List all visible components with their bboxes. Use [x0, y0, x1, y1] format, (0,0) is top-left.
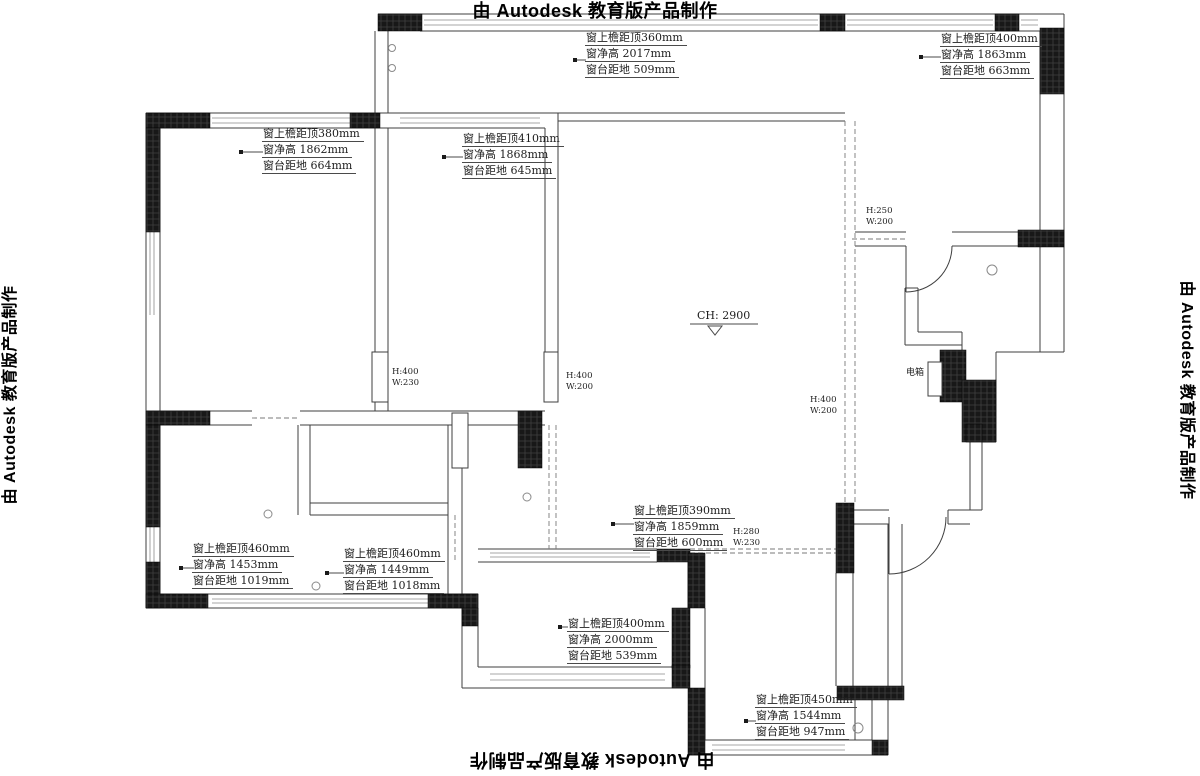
annotation-line: 窗净高 1862mm — [262, 142, 352, 158]
frames — [372, 352, 942, 468]
annotation-line: 窗上檐距顶400mm — [940, 31, 1042, 47]
annotation-line: 窗净高 2000mm — [567, 632, 657, 648]
annotation-line: 窗上檐距顶450mm — [755, 692, 857, 708]
annotation-line: 窗净高 1453mm — [192, 557, 282, 573]
annotation-line: 窗净高 2017mm — [585, 46, 675, 62]
opening-width: W:200 — [566, 382, 593, 393]
opening-height: H:400 — [566, 371, 593, 382]
watermark-bottom: 由 Autodesk 教育版产品制作 — [452, 749, 732, 771]
annotation-line: 窗上檐距顶360mm — [585, 30, 687, 46]
window-annotation-top-center: 窗上檐距顶360mm 窗净高 2017mm 窗台距地 509mm — [585, 30, 687, 78]
opening-height: H:250 — [866, 206, 893, 217]
opening-width: W:230 — [392, 378, 419, 389]
floor-plan-page: 窗上檐距顶360mm 窗净高 2017mm 窗台距地 509mm 窗上檐距顶40… — [0, 0, 1200, 776]
annotation-line: 窗上檐距顶460mm — [343, 546, 445, 562]
opening-width: W:230 — [733, 538, 760, 549]
ceiling-height-label: CH: 2900 — [697, 309, 750, 322]
watermark-left: 由 Autodesk 教育版产品制作 — [0, 255, 22, 535]
opening-height: H:400 — [392, 367, 419, 378]
annotation-line: 窗净高 1449mm — [343, 562, 433, 578]
window-annotation-bottom-middle: 窗上檐距顶400mm 窗净高 2000mm 窗台距地 539mm — [567, 616, 669, 664]
annotation-line: 窗台距地 600mm — [633, 535, 727, 551]
window-annotation-lower-left: 窗上檐距顶460mm 窗净高 1453mm 窗台距地 1019mm — [192, 541, 294, 589]
ceiling-height-marker — [690, 324, 758, 335]
window-annotation-upper-left: 窗上檐距顶380mm 窗净高 1862mm 窗台距地 664mm — [262, 126, 364, 174]
annotation-line: 窗台距地 509mm — [585, 62, 679, 78]
opening-label-top-right-passage: H:250 W:200 — [866, 206, 893, 228]
annotation-line: 窗台距地 947mm — [755, 724, 849, 740]
annotation-line: 窗上檐距顶380mm — [262, 126, 364, 142]
watermark-right: 由 Autodesk 教育版产品制作 — [1175, 250, 1197, 530]
annotation-line: 窗净高 1544mm — [755, 708, 845, 724]
electrical-box-label: 电箱 — [906, 368, 924, 379]
window-annotation-bottom-right: 窗上檐距顶450mm 窗净高 1544mm 窗台距地 947mm — [755, 692, 857, 740]
opening-label-corridor-opening: H:400 W:200 — [810, 395, 837, 417]
annotation-line: 窗台距地 664mm — [262, 158, 356, 174]
annotation-line: 窗上檐距顶390mm — [633, 503, 735, 519]
annotation-line: 窗台距地 663mm — [940, 63, 1034, 79]
annotation-line: 窗台距地 645mm — [462, 163, 556, 179]
annotation-line: 窗净高 1868mm — [462, 147, 552, 163]
annotation-line: 窗台距地 1019mm — [192, 573, 293, 589]
annotation-line: 窗台距地 539mm — [567, 648, 661, 664]
dashed-opening-lines — [252, 121, 906, 560]
window-annotation-lower-middle: 窗上檐距顶460mm 窗净高 1449mm 窗台距地 1018mm — [343, 546, 445, 594]
opening-label-left-bedroom-door: H:400 W:230 — [392, 367, 419, 389]
opening-height: H:280 — [733, 527, 760, 538]
opening-label-entry-opening: H:280 W:230 — [733, 527, 760, 549]
opening-width: W:200 — [866, 217, 893, 228]
annotation-line: 窗上檐距顶400mm — [567, 616, 669, 632]
annotation-line: 窗上檐距顶460mm — [192, 541, 294, 557]
watermark-top: 由 Autodesk 教育版产品制作 — [455, 0, 735, 22]
window-annotation-center-bottom: 窗上檐距顶390mm 窗净高 1859mm 窗台距地 600mm — [633, 503, 735, 551]
annotation-line: 窗净高 1859mm — [633, 519, 723, 535]
opening-height: H:400 — [810, 395, 837, 406]
opening-width: W:200 — [810, 406, 837, 417]
opening-label-middle-bedroom-door: H:400 W:200 — [566, 371, 593, 393]
annotation-line: 窗台距地 1018mm — [343, 578, 444, 594]
window-annotation-upper-middle: 窗上檐距顶410mm 窗净高 1868mm 窗台距地 645mm — [462, 131, 564, 179]
annotation-line: 窗上檐距顶410mm — [462, 131, 564, 147]
window-annotation-top-right: 窗上檐距顶400mm 窗净高 1863mm 窗台距地 663mm — [940, 31, 1042, 79]
annotation-line: 窗净高 1863mm — [940, 47, 1030, 63]
